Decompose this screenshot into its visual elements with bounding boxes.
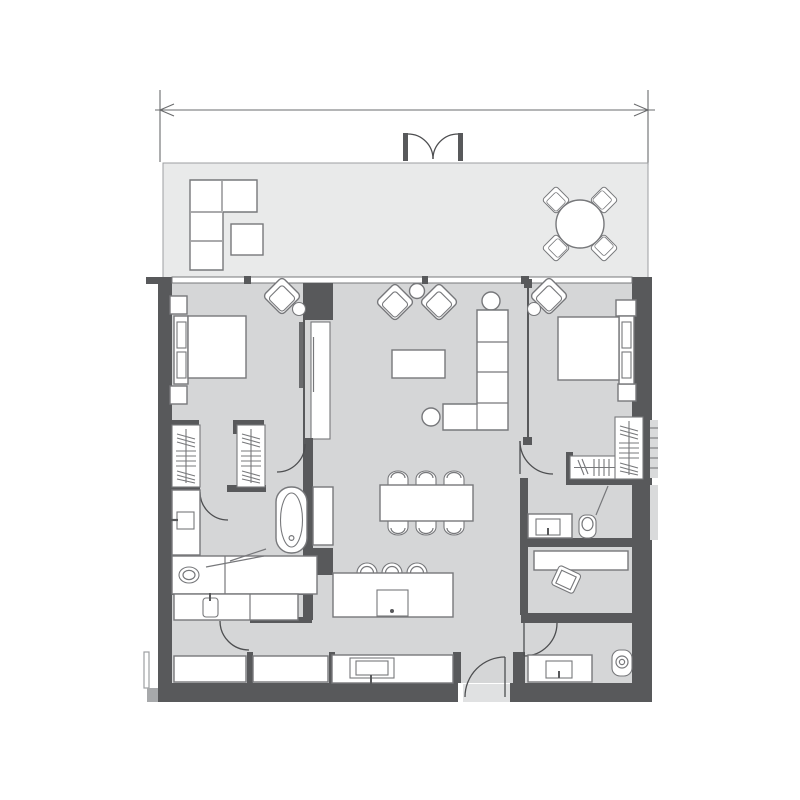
- wall-hung-toilet: [177, 512, 194, 529]
- toilet: [579, 515, 596, 538]
- toilet: [612, 650, 632, 676]
- coffee-table: [392, 350, 445, 378]
- exterior-step: [147, 688, 158, 702]
- side-table: [482, 292, 500, 310]
- side-table: [293, 303, 306, 316]
- wardrobe: [237, 425, 265, 487]
- side-table: [528, 303, 541, 316]
- french-door: [403, 133, 463, 161]
- nightstand: [618, 384, 636, 401]
- balcony: [163, 133, 648, 278]
- nightstand: [616, 300, 636, 316]
- entry-threshold: [463, 684, 510, 702]
- nightstand: [170, 296, 187, 314]
- bed-2: [558, 317, 619, 380]
- dining-area: [380, 471, 473, 535]
- wardrobe: [615, 417, 643, 479]
- vanity-1: [172, 549, 317, 594]
- dining-table: [380, 485, 473, 521]
- basin: [179, 567, 199, 583]
- side-table: [422, 408, 440, 426]
- wall-bottom-left: [158, 683, 458, 702]
- wall-right: [632, 277, 652, 702]
- floor-plan-canvas: [0, 0, 800, 800]
- side-table: [410, 284, 425, 299]
- bed-1: [188, 316, 246, 378]
- wardrobe: [172, 425, 200, 487]
- tv-panel: [299, 322, 303, 388]
- wall-bottom-right: [510, 683, 652, 702]
- desk: [534, 551, 628, 570]
- cabinet-row: [253, 656, 328, 682]
- cabinet: [313, 487, 333, 545]
- balcony-round-table: [556, 200, 604, 248]
- cabinet-row: [174, 594, 298, 620]
- cabinet-row: [174, 656, 246, 682]
- floor-plan-page: [0, 0, 800, 800]
- bathtub: [276, 487, 307, 553]
- nightstand: [170, 386, 187, 404]
- balcony-ottoman: [231, 224, 263, 255]
- window-wall: [172, 276, 632, 284]
